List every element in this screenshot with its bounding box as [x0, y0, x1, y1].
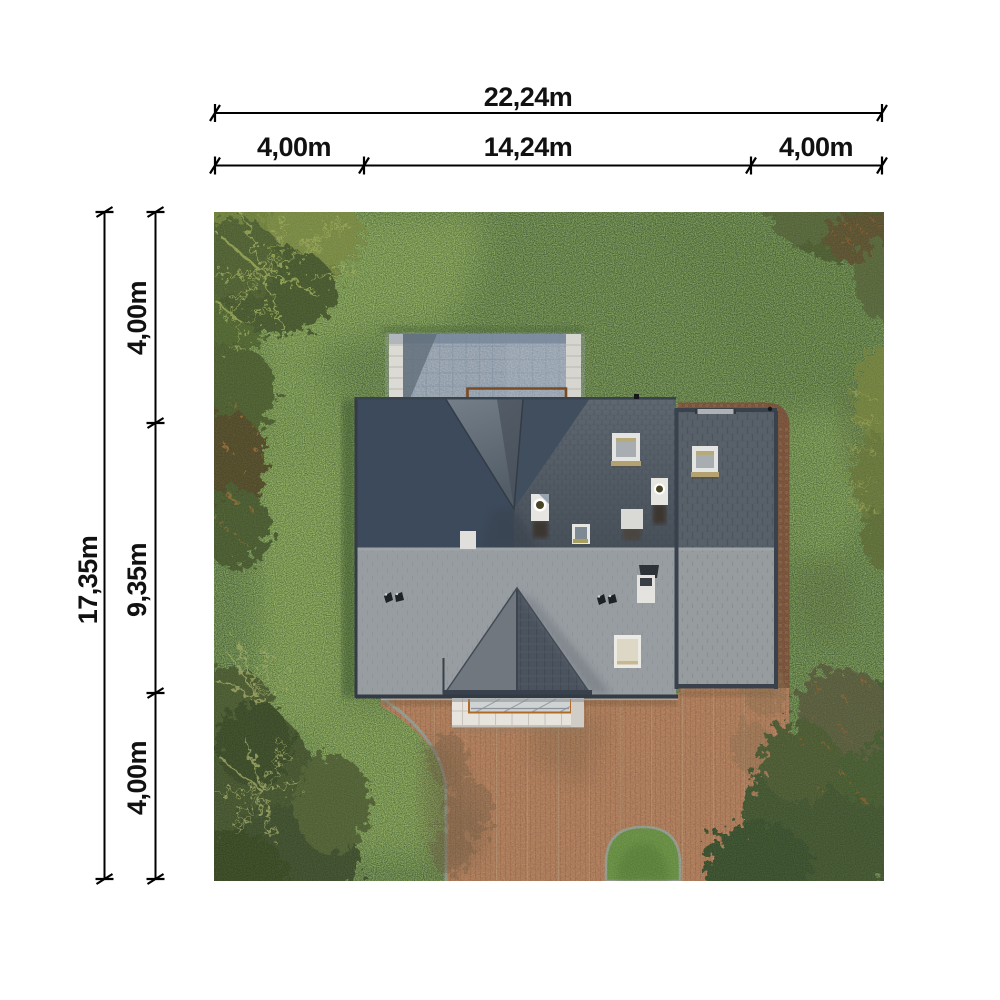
svg-text:4,00m: 4,00m — [122, 281, 152, 355]
svg-text:14,24m: 14,24m — [484, 132, 573, 162]
svg-text:17,35m: 17,35m — [73, 536, 103, 625]
svg-text:9,35m: 9,35m — [122, 543, 152, 617]
svg-text:4,00m: 4,00m — [779, 132, 853, 162]
svg-text:4,00m: 4,00m — [122, 741, 152, 815]
svg-text:22,24m: 22,24m — [484, 82, 573, 112]
svg-text:4,00m: 4,00m — [257, 132, 331, 162]
